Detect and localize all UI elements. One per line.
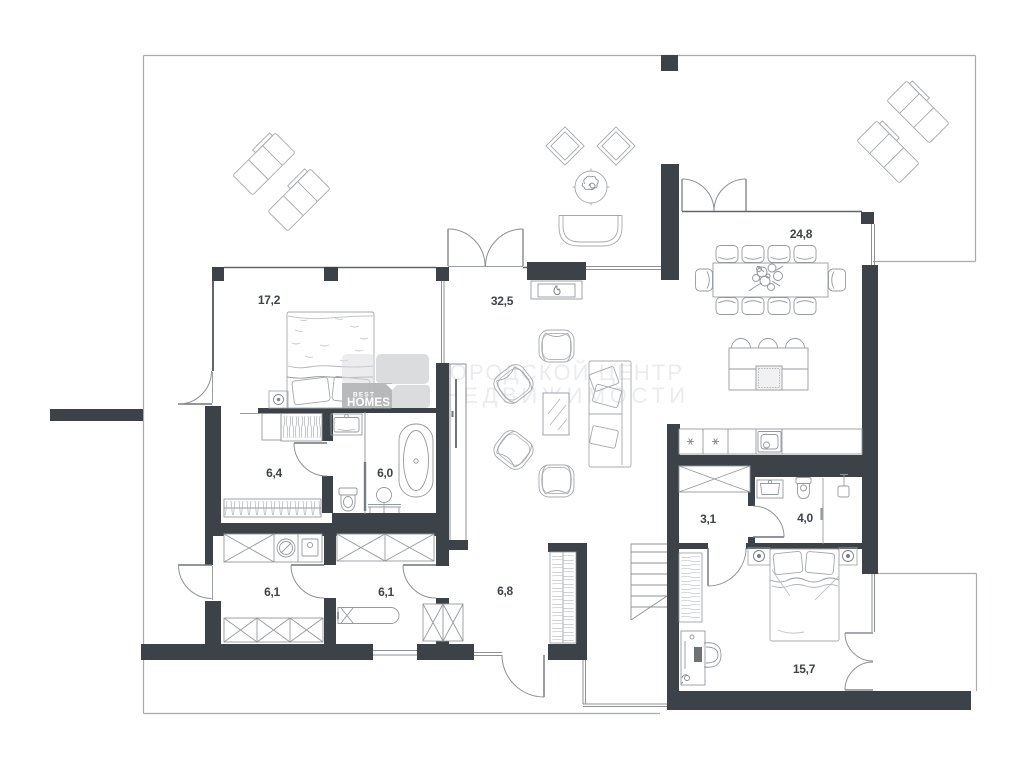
svg-text:3,1: 3,1 [700,512,716,526]
svg-text:6,1: 6,1 [378,585,394,599]
svg-text:17,2: 17,2 [258,293,281,307]
svg-text:32,5: 32,5 [491,294,514,308]
svg-text:6,8: 6,8 [497,584,513,598]
svg-text:6,4: 6,4 [266,466,282,480]
svg-text:6,0: 6,0 [377,466,393,480]
svg-text:ГОРОДСКОЙ ЦЕНТР: ГОРОДСКОЙ ЦЕНТР [437,360,682,385]
svg-text:4,0: 4,0 [797,511,813,525]
svg-text:6,1: 6,1 [264,585,280,599]
svg-text:24,8: 24,8 [790,227,813,241]
svg-text:15,7: 15,7 [793,662,816,676]
svg-text:HOMES: HOMES [347,397,390,409]
